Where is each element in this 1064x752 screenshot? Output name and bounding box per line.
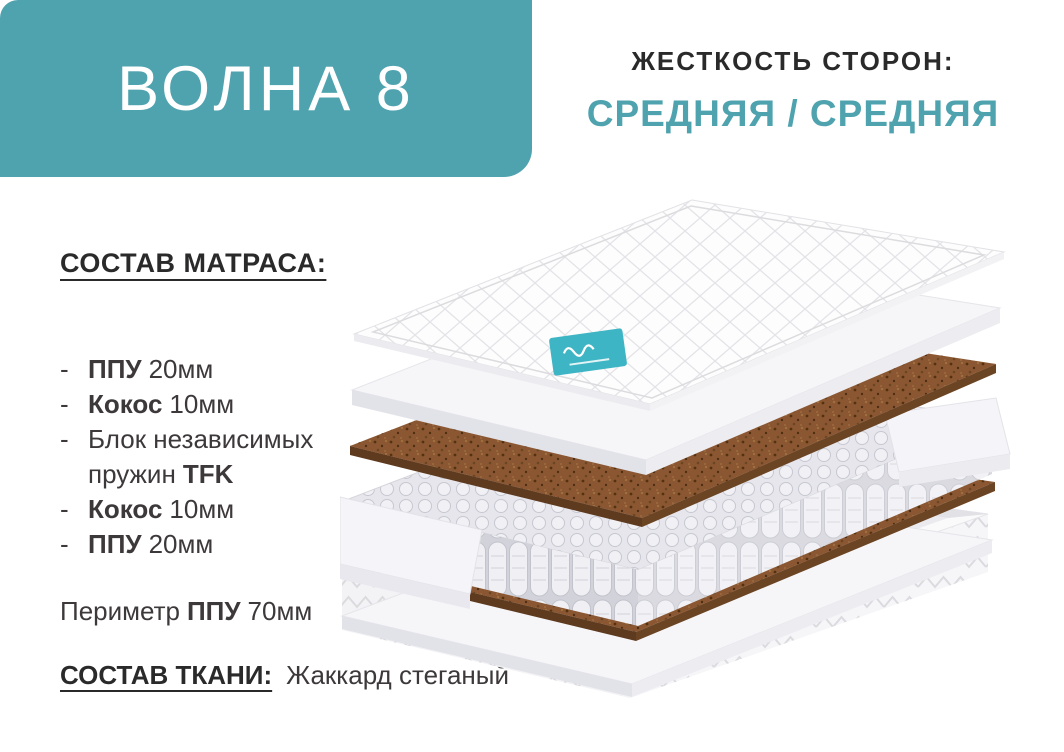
item-text: Кокос10мм [88, 387, 340, 422]
item-dash: - [60, 352, 88, 387]
firmness-value: СРЕДНЯЯ / СРЕДНЯЯ [545, 93, 1041, 135]
item-text: ППУ20мм [88, 352, 340, 387]
composition-list: - ППУ20мм - Кокос10мм - Блок независимых… [60, 352, 340, 562]
composition-heading: СОСТАВ МАТРАСА: [60, 248, 326, 279]
mattress-illustration [340, 192, 1050, 712]
item-dash: - [60, 492, 88, 527]
list-item: - ППУ20мм [60, 352, 340, 387]
item-text: Кокос10мм [88, 492, 340, 527]
item-dash: - [60, 422, 88, 492]
item-text: Блок независимых пружинTFK [88, 422, 340, 492]
firmness-label: ЖЕСТКОСТЬ СТОРОН: [545, 46, 1041, 77]
perimeter-note: ПериметрППУ70мм [60, 596, 312, 627]
infographic-page: ВОЛНА 8 ЖЕСТКОСТЬ СТОРОН: СРЕДНЯЯ / СРЕД… [0, 0, 1064, 752]
list-item: - Кокос10мм [60, 492, 340, 527]
item-dash: - [60, 387, 88, 422]
list-item: - Кокос10мм [60, 387, 340, 422]
list-item: - ППУ20мм [60, 527, 340, 562]
product-title: ВОЛНА 8 [117, 53, 415, 125]
fabric-heading: СОСТАВ ТКАНИ: [60, 660, 272, 690]
item-text: ППУ20мм [88, 527, 340, 562]
item-dash: - [60, 527, 88, 562]
list-item: - Блок независимых пружинTFK [60, 422, 340, 492]
product-banner: ВОЛНА 8 [0, 0, 532, 177]
firmness-section: ЖЕСТКОСТЬ СТОРОН: СРЕДНЯЯ / СРЕДНЯЯ [545, 46, 1041, 135]
